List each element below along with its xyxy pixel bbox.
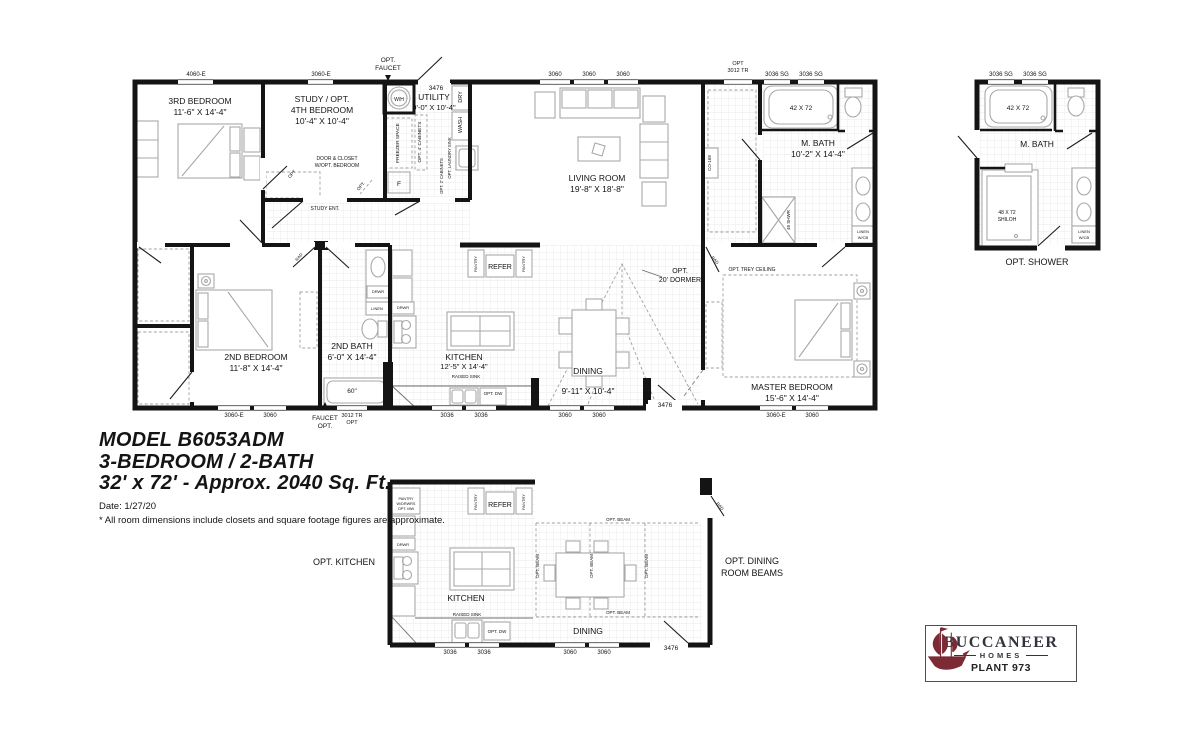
win-label-3012tr-top-line2: 3012 TR [728,68,749,74]
opt-faucet-top-line1: OPT. [381,57,396,64]
freezer-space-label: FREEZER SPACE [395,123,401,163]
bed2-furniture [196,274,272,350]
opt-beam-h2-label: OPT. BEAM [606,610,630,615]
opt-dw-label: OPT. DW [484,391,504,396]
opt-dormer-line2: 20' DORMER [659,277,701,284]
win-label-3036-k2: 3036 [474,413,488,419]
refer-opt-label: REFER [488,502,512,509]
opt-4-cabinets-label: OPT. 4' CABINETS [417,122,423,163]
door-label-3476-bottom: 3476 [658,402,673,409]
mbath-opt-linen-line2: W/CB [1079,235,1090,240]
opt-dw-opt-label: OPT. DW [488,629,508,634]
shiloh-shower [982,170,1038,246]
win-label-3060e-master: 3060-E [766,413,785,419]
water-heater-label: W/H [394,97,404,103]
buccaneer-logo: BUCCANEER HOMES PLANT 973 [925,625,1077,682]
room-kitchen-dims: 12'-5" X 14'-4" [440,362,488,371]
win-label-3036sg-2: 3036 SG [799,72,823,78]
room-study-dims: 10'-4" X 10'-4" [295,116,349,126]
opt-beam-v1-label: OPT. BEAM [535,554,540,578]
pantry-opt-left-label: PANTRY [473,494,478,510]
win-label-3060-d2: 3060 [592,413,606,419]
win-label-3012tr-b-line2: OPT [346,420,358,426]
opt-dining-caption-line2: ROOM BEAMS [721,568,783,578]
pantry-left-label: PANTRY [473,256,478,272]
kitchen-drwr-label: DRWR [397,305,409,310]
buccaneer-ship-icon [926,626,970,674]
mbath-linen-line2: W/CB [858,235,869,240]
disclaimer-note: * All room dimensions include closets an… [99,515,445,526]
opt-dining-caption-line1: OPT. DINING [725,556,779,566]
door-closet-note-line2: W/OPT. BEDROOM [315,163,359,169]
shiloh-shower-line1: 48 X 72 [998,210,1015,216]
room-bedroom3-name: 3RD BEDROOM [168,96,231,106]
opt-beam-v3-label: OPT. BEAM [644,554,649,578]
room-study-name2: 4TH BEDROOM [291,105,353,115]
room-living-name: LIVING ROOM [569,173,626,183]
raised-sink-label: RAISED SINK [452,374,481,379]
study-ent-label: STUDY ENT. [310,206,339,212]
model-size: 32' x 72' - Approx. 2040 Sq. Ft. [99,473,445,495]
logo-rule-right [1026,655,1048,656]
room-dining-name: DINING [573,366,603,376]
wash-label: WASH [458,117,464,133]
room-bedroom2-name: 2ND BEDROOM [224,352,287,362]
room-bedroom3-dims: 11'-6" X 14'-4" [173,107,226,117]
opt-trey-ceiling-label: OPT. TREY CEILING [728,267,775,273]
room-master-dims: 15'-6" X 14'-4" [765,393,819,403]
opt-laundry-sink-label: OPT. LAUNDRY SINK [447,137,452,178]
win-label-3060-lr2: 3060 [582,72,596,78]
bed3-furniture [137,121,260,180]
closet-shelf-2 [138,332,189,404]
win-label-3060-lr1: 3060 [548,72,562,78]
room-study-name1: STUDY / OPT. [295,94,350,104]
rad-door-opt-label: RAD [715,501,725,511]
closet-shelf-1 [138,249,189,321]
room-mbath-dims: 10'-2" X 14'-4" [791,149,845,159]
room-kitchen-opt-name: KITCHEN [447,593,484,603]
win-label-3036-opt1: 3036 [443,650,457,656]
win-label-3012tr-b-line1: 3012 TR [342,413,363,419]
opt-beam-v2-label: OPT. BEAM [589,554,594,578]
faucet-opt-bottom-line1: FAUCET [312,415,338,422]
logo-division-text: HOMES [980,651,1023,660]
rad-door-bed2-label: RAD [294,252,304,262]
win-label-3012tr-top-line1: OPT [732,61,744,67]
refer-label: REFER [488,264,512,271]
room-bath2-name: 2ND BATH [331,341,372,351]
mbath-linen-line1: LINEN [857,229,869,234]
win-label-3036-opt2: 3036 [477,650,491,656]
opt-door-hall-label: OPT. [356,181,366,192]
win-label-3036sg-1: 3036 SG [765,72,789,78]
win-label-3060-lr3: 3060 [616,72,630,78]
room-utility-name: UTILITY [418,92,450,102]
dry-label: DRY [458,91,464,103]
opt-door-study-label: OPT [287,169,297,179]
model-layout: 3-BEDROOM / 2-BATH [99,452,445,474]
bath2-tub-label: 60" [347,388,357,395]
room-kitchen-name: KITCHEN [445,352,482,362]
win-label-3060-opt1: 3060 [563,650,577,656]
title-block: MODEL B6053ADM 3-BEDROOM / 2-BATH 32' x … [99,430,445,526]
shiloh-shower-line2: SHILOH [998,217,1017,223]
win-label-3060e-top: 3060-E [311,72,330,78]
opt-faucet-top-line2: FAUCET [375,65,401,72]
bed2-dresser [300,292,317,348]
master-dresser [706,302,722,368]
rad-door-master-label: RAD [710,255,720,265]
room-bedroom2-dims: 11'-8" X 14'-4" [229,363,282,373]
logo-plant-text: PLANT 973 [971,662,1031,674]
room-master-name: MASTER BEDROOM [751,382,833,392]
opt-dormer-line1: OPT. [672,268,688,275]
opt-2-cabinets-label: OPT. 2' CABINETS [439,158,444,194]
mbath-opt-linen-line1: LINEN [1078,229,1090,234]
raised-sink-opt-label: RAISED SINK [453,612,482,617]
pantry-opt-right-label: PANTRY [521,494,526,510]
co168-label: CO-168 [707,155,712,171]
win-label-3036sg-opt2: 3036 SG [1023,72,1047,78]
opt-kitchen-caption: OPT. KITCHEN [313,557,375,567]
win-label-3060-master: 3060 [805,413,819,419]
room-mbath-opt-name: M. BATH [1020,139,1054,149]
room-dining-dims: 9'-11" X 10'-4" [561,386,614,396]
opt-shower-caption: OPT. SHOWER [1005,257,1069,267]
door-closet-note-line1: DOOR & CLOSET [316,156,357,162]
door-label-3476-opt: 3476 [664,645,679,652]
room-bath2-dims: 6'-0" X 14'-4" [328,352,377,362]
room-living-dims: 19'-8" X 18'-8" [570,184,624,194]
win-label-3036sg-opt1: 3036 SG [989,72,1013,78]
opt-beam-h1-label: OPT. BEAM [606,517,630,522]
mbath-toilet [845,88,862,97]
floorplan-sheet: 4060-E3060-EOPT.FAUCET3476306030603060OP… [0,0,1200,747]
mbath-opt-tub-label: 42 X 72 [1007,105,1030,112]
bath2-toilet [362,319,378,339]
bath2-linen-label: LINEN [371,306,383,311]
bath2-drwr-label: DRWR [372,289,384,294]
win-label-4060e: 4060-E [186,72,205,78]
furnace-label: F [397,181,401,188]
master-furniture [795,283,870,377]
room-mbath-name: M. BATH [801,138,835,148]
win-label-3060-d1: 3060 [558,413,572,419]
model-number: MODEL B6053ADM [99,430,445,452]
pantry-right-label: PANTRY [521,256,526,272]
room-utility-dims: 9'-0" X 10'-4" [412,103,456,112]
win-label-3060-bed2: 3060 [263,413,277,419]
kitchen-opt-drwr-label: DRWR [397,542,409,547]
door-label-3476-top: 3476 [429,85,444,92]
win-label-3060e-bed2: 3060-E [224,413,243,419]
mbath-tub-label: 42 X 72 [790,105,813,112]
faucet-opt-bottom-line2: OPT. [318,423,333,430]
win-label-3060-opt2: 3060 [597,650,611,656]
win-label-3036-k1: 3036 [440,413,454,419]
plan-date: Date: 1/27/20 [99,501,445,512]
mbath-shower-label: 48 SHWR [786,209,791,230]
room-dining-opt-name: DINING [573,626,603,636]
